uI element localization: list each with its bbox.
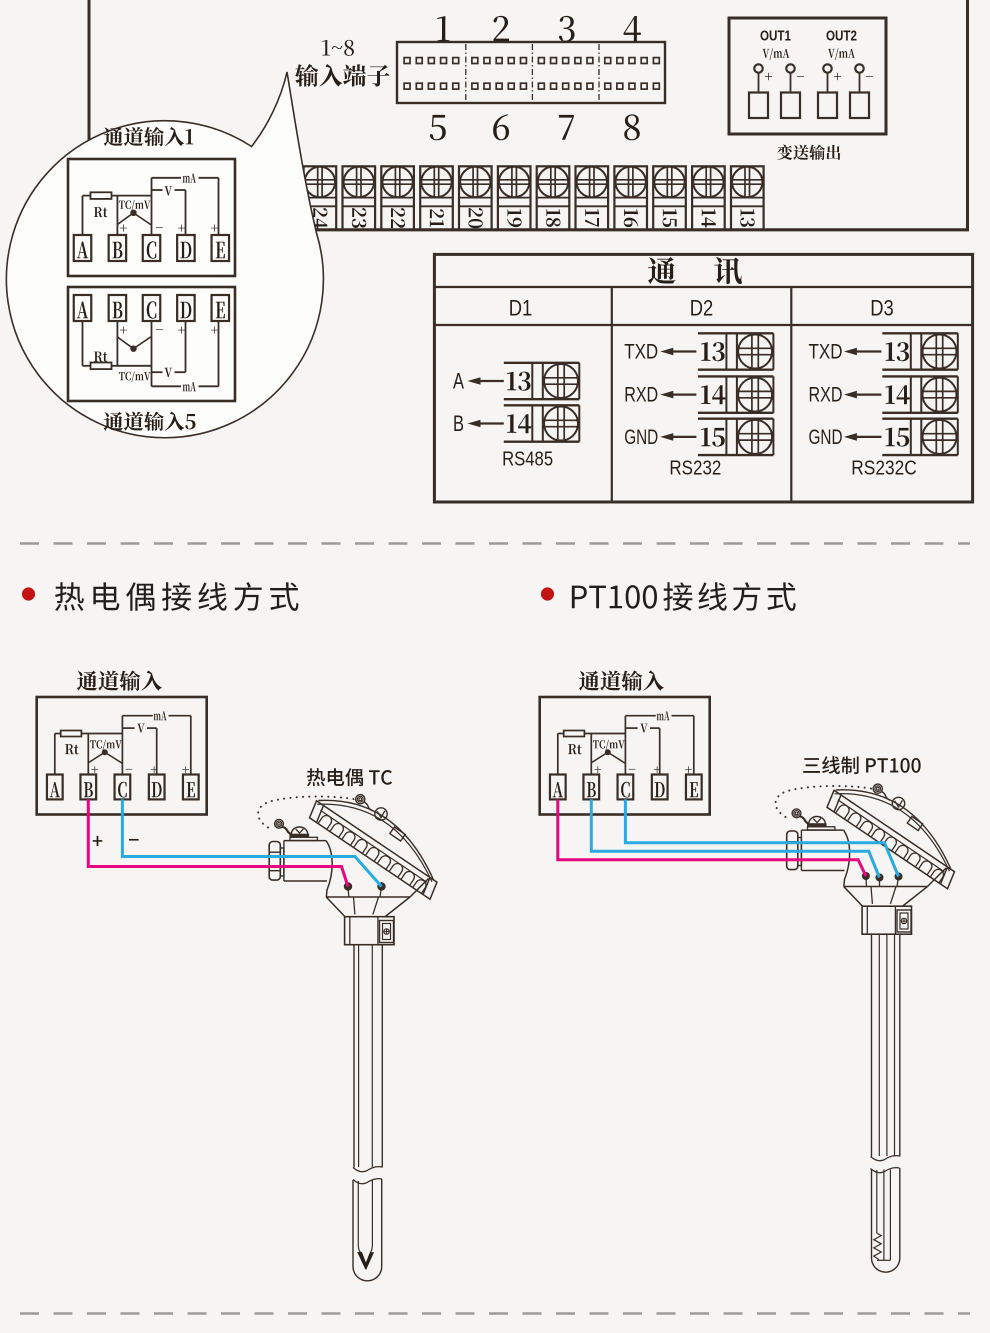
svg-text:RS232C: RS232C: [851, 458, 917, 480]
svg-text:A: A: [453, 368, 464, 393]
svg-text:B: B: [453, 411, 464, 436]
svg-text:RXD: RXD: [624, 383, 658, 407]
svg-text:RS485: RS485: [502, 448, 553, 470]
svg-text:GND: GND: [809, 425, 843, 449]
svg-text:TXD: TXD: [624, 340, 658, 364]
svg-text:OUT1: OUT1: [760, 29, 791, 45]
svg-text:RXD: RXD: [809, 383, 843, 407]
svg-text:GND: GND: [624, 425, 658, 449]
svg-text:D2: D2: [690, 296, 714, 321]
svg-text:TXD: TXD: [809, 340, 843, 364]
svg-text:RS232: RS232: [669, 458, 721, 480]
svg-text:D1: D1: [509, 296, 533, 321]
svg-text:D3: D3: [870, 296, 894, 321]
svg-text:OUT2: OUT2: [826, 29, 857, 45]
